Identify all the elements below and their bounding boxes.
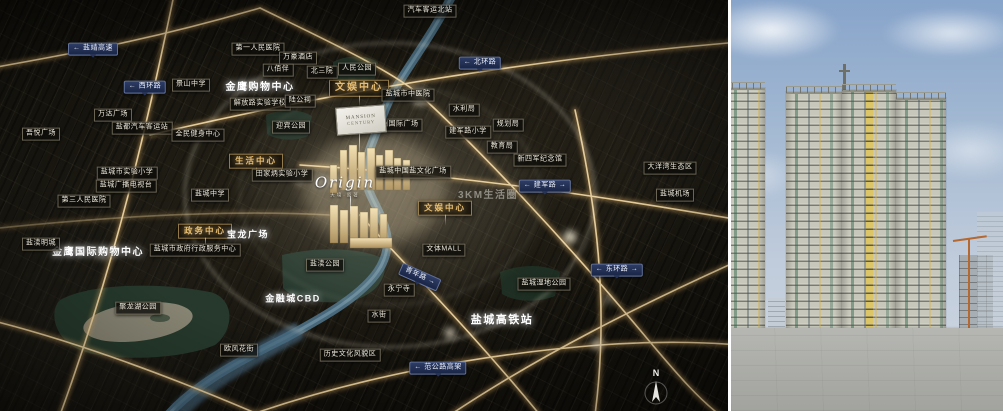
roof-rail (896, 92, 946, 99)
map-label: 永宁寺 (384, 284, 415, 297)
map-label: 北三院 (307, 66, 338, 79)
map-label: 第三人民医院 (58, 195, 111, 208)
map-label: 建军路小学 (445, 126, 491, 139)
map-label: 盐城机场 (656, 189, 694, 202)
tower-main-center (842, 90, 896, 334)
map-label: ← 东环路 → (591, 264, 643, 277)
compass-needle (644, 378, 668, 408)
map-label: 大洋湾生态区 (644, 162, 697, 175)
map-label: ← 范公路高架 (409, 362, 466, 375)
map-label: 生活中心 (229, 154, 283, 169)
roof-rail (842, 84, 896, 91)
tower-main-right (896, 98, 946, 334)
cloud (731, 0, 841, 60)
map-label: 宝龙广场 (227, 229, 269, 240)
map-label: 历史文化风貌区 (320, 349, 381, 362)
billboard-line2: CENTURY (347, 119, 375, 126)
map-label: 盐都汽车客运站 (112, 122, 173, 135)
map-label: 盐城中学 (191, 189, 229, 202)
cloud (881, 8, 1003, 58)
map-label: 盐城广播电视台 (96, 180, 157, 193)
roof-mast-bar (839, 70, 850, 72)
map-label: 盐渎明城 (22, 238, 60, 251)
hazy-tower (977, 212, 1003, 332)
map-label: 盐城市中医院 (382, 89, 435, 102)
map-label: 陆公祠 (285, 95, 316, 108)
distant-building (768, 298, 785, 332)
map-label: 欧风花街 (220, 344, 258, 357)
map-label: 政务中心 (178, 224, 232, 239)
map-label: 迎宾公园 (272, 121, 310, 134)
map-label: 景山中学 (172, 79, 210, 92)
map-label: 盐城市实验小学 (97, 167, 158, 180)
map-label: 第一人民医院 (232, 43, 285, 56)
map-label: 金鹰购物中心 (226, 82, 295, 95)
tower-left (731, 88, 765, 334)
map-label: 全民健身中心 (172, 129, 225, 142)
map-label: 规划局 (493, 119, 524, 132)
map-label: 吾悦广场 (22, 128, 60, 141)
building-photo (731, 0, 1003, 411)
roof-rail (786, 86, 842, 93)
roof-rail (731, 82, 765, 89)
compass-icon: N (644, 368, 668, 408)
map-label: 盐渎公园 (306, 259, 344, 272)
map-label: ← 盐靖高速 (68, 43, 118, 56)
concrete-ground (731, 328, 1003, 411)
map-label: 万达广场 (94, 109, 132, 122)
map-label: 盐城高铁站 (471, 314, 534, 328)
crane-icon (968, 238, 970, 332)
map-label: ← 西环路 (124, 81, 166, 94)
map-label: 盐城市政府行政服务中心 (150, 244, 241, 257)
map-label: 文娱中心 (418, 201, 472, 216)
map-label: 人民公园 (338, 63, 376, 76)
tower-main-left (786, 92, 842, 334)
map-label: ← 建军路 → (519, 180, 571, 193)
map-label: ← 北环路 (459, 57, 501, 70)
location-map: MANSION CENTURY Origin 大境·原著 ← 盐靖高速← 西环路… (0, 0, 728, 411)
project-billboard: MANSION CENTURY (335, 104, 387, 135)
map-label: 文体MALL (422, 244, 465, 257)
map-label: 解放路实验学校 (230, 98, 291, 111)
billboard-pole (359, 132, 360, 154)
logo-pole (350, 196, 351, 214)
compass-north-letter: N (644, 368, 668, 378)
yellow-core-strip (866, 92, 873, 334)
composite-image: MANSION CENTURY Origin 大境·原著 ← 盐靖高速← 西环路… (0, 0, 1003, 411)
logo-script-text: Origin (315, 174, 375, 192)
map-label: 汽车客运北站 (404, 5, 457, 18)
map-label: 八佰伴 (263, 64, 294, 77)
map-label: 金鹰国际购物中心 (52, 247, 144, 260)
map-label: 水利局 (449, 104, 480, 117)
map-label: 3KM生活圈 (458, 190, 518, 203)
map-label: 金融城CBD (265, 293, 321, 304)
map-label: 盐城中国盐文化广场 (375, 166, 451, 179)
map-label: 聚龙湖公园 (115, 302, 161, 315)
project-logo: Origin 大境·原著 (315, 174, 375, 199)
map-label: 水街 (368, 310, 391, 323)
map-label: 教育局 (487, 141, 518, 154)
map-label: 文娱中心 (329, 80, 389, 97)
map-label: 田家炳实验小学 (252, 169, 313, 182)
map-label: 万豪酒店 (279, 52, 317, 65)
map-label: 盐城湿地公园 (518, 278, 571, 291)
logo-sub-text: 大境·原著 (315, 193, 375, 199)
map-label: 新四军纪念馆 (514, 154, 567, 167)
